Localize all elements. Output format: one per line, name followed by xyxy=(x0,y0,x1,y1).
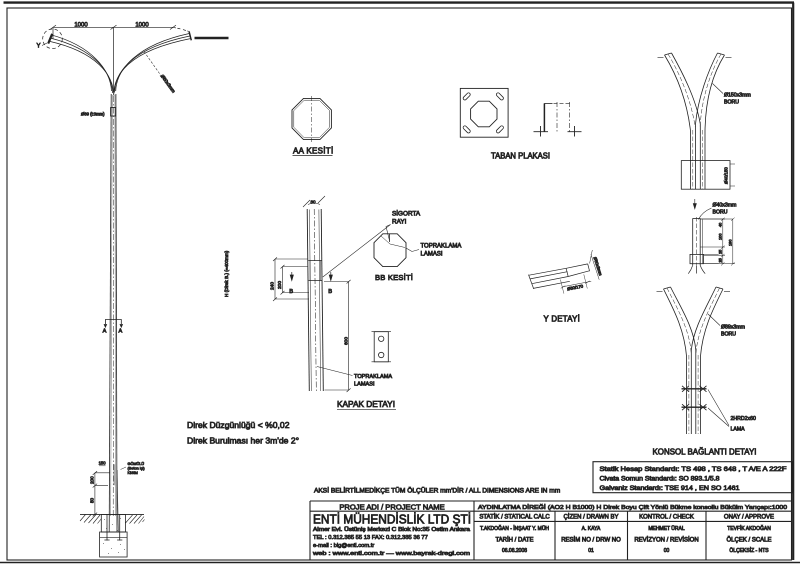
svg-text:06.08.2008: 06.08.2008 xyxy=(502,548,527,554)
svg-text:TARİH / DATE: TARİH / DATE xyxy=(495,537,533,544)
svg-text:RAYI: RAYI xyxy=(392,219,407,226)
svg-text:B: B xyxy=(328,289,332,295)
svg-text:GÖMÜLÜ: GÖMÜLÜ xyxy=(128,462,145,466)
svg-text:TABAN PLAKASI: TABAN PLAKASI xyxy=(491,152,550,161)
svg-text:25: 25 xyxy=(718,250,723,254)
svg-text:TOPRAKLAMA: TOPRAKLAMA xyxy=(354,374,392,380)
svg-text:2HRD2x60: 2HRD2x60 xyxy=(731,416,756,422)
svg-text:H (Direk B.) (=400mm): H (Direk B.) (=400mm) xyxy=(224,250,229,297)
svg-text:80: 80 xyxy=(311,200,317,205)
svg-text:Civata Somun Standardı: SO 89: Civata Somun Standardı: SO 893.1/5.8 xyxy=(600,476,720,483)
svg-text:AA KESİTİ: AA KESİTİ xyxy=(293,147,334,156)
svg-text:Ø40x3mm: Ø40x3mm xyxy=(713,203,737,209)
svg-text:TEL : 0.312.385 55 13 FAX: 0.: TEL : 0.312.385 55 13 FAX: 0.312.385 36 … xyxy=(313,535,428,541)
svg-text:KAPAK DETAYI: KAPAK DETAYI xyxy=(337,399,395,409)
svg-text:LAMA: LAMA xyxy=(731,427,746,433)
svg-text:Y: Y xyxy=(37,44,41,50)
svg-text:240: 240 xyxy=(270,282,276,290)
svg-text:e-mail : blg@enti.com.tr: e-mail : blg@enti.com.tr xyxy=(313,543,374,549)
svg-text:Statik Hesap Standardı: TS 498: Statik Hesap Standardı: TS 498 , TS 648 … xyxy=(600,466,787,473)
svg-text:LAMASI: LAMASI xyxy=(354,381,375,387)
svg-text:BORU: BORU xyxy=(724,100,739,106)
svg-text:Ø40/150: Ø40/150 xyxy=(724,167,729,184)
svg-text:100: 100 xyxy=(718,233,723,240)
svg-text:00: 00 xyxy=(664,548,670,554)
svg-text:50: 50 xyxy=(90,497,95,503)
svg-text:BORU: BORU xyxy=(713,210,728,216)
svg-text:AYDINLATMA DİREĞİ (AO2 H B1000: AYDINLATMA DİREĞİ (AO2 H B1000) H Direk … xyxy=(478,504,788,511)
svg-text:200: 200 xyxy=(90,476,95,484)
svg-text:Ø150x3mm: Ø150x3mm xyxy=(724,93,751,99)
svg-text:RESİM NO / DRW NO: RESİM NO / DRW NO xyxy=(561,537,621,544)
svg-text:KONTROL / CHECK: KONTROL / CHECK xyxy=(639,515,694,521)
svg-text:B: B xyxy=(289,289,293,295)
svg-text:Almer Evl. Üstüniş Merkezi C B: Almer Evl. Üstüniş Merkezi C Blok No:35 … xyxy=(313,526,470,533)
svg-text:1000: 1000 xyxy=(74,22,88,28)
svg-text:190: 190 xyxy=(728,239,733,246)
svg-text:A. KAYA: A. KAYA xyxy=(582,526,601,532)
svg-text:SİGORTA: SİGORTA xyxy=(392,209,421,218)
svg-text:200: 200 xyxy=(277,281,283,289)
svg-text:Direk Düzgünlüğü < %0,02: Direk Düzgünlüğü < %0,02 xyxy=(187,420,290,430)
svg-text:ENTİ MÜHENDİSLİK LTD ŞTİ: ENTİ MÜHENDİSLİK LTD ŞTİ xyxy=(313,513,471,527)
svg-text:25: 25 xyxy=(718,258,723,262)
svg-text:A: A xyxy=(103,329,107,335)
svg-text:Direk Burulması her 3m'de 2°: Direk Burulması her 3m'de 2° xyxy=(187,436,299,446)
svg-text:web : www.enti.com.tr — ww: web : www.enti.com.tr — www.bayrak-dregi… xyxy=(312,551,470,557)
svg-text:KISIM: KISIM xyxy=(128,471,138,475)
svg-text:LAMASI: LAMASI xyxy=(421,252,443,258)
svg-text:BORU: BORU xyxy=(721,332,736,338)
svg-text:KONSOL BAĞLANTI DETAYI: KONSOL BAĞLANTI DETAYI xyxy=(653,446,757,456)
svg-text:01: 01 xyxy=(588,548,594,554)
svg-text:ÇİZEN / DRAWN BY: ÇİZEN / DRAWN BY xyxy=(563,514,618,521)
svg-text:150: 150 xyxy=(99,461,107,466)
svg-text:(Beton içi): (Beton içi) xyxy=(128,466,146,470)
svg-text:Y DETAYİ: Y DETAYİ xyxy=(544,315,581,324)
svg-text:Ø89x3mm: Ø89x3mm xyxy=(721,325,745,331)
svg-text:AKSİ BELİRTİLMEDİKÇE TÜM ÖLÇÜL: AKSİ BELİRTİLMEDİKÇE TÜM ÖLÇÜLER mm'DİR … xyxy=(314,486,561,495)
svg-text:TOPRAKLAMA: TOPRAKLAMA xyxy=(421,244,462,250)
svg-text:Galvaniz Standardı: TSE 914 ,: Galvaniz Standardı: TSE 914 , EN SO 1461 xyxy=(600,485,741,492)
svg-text:600: 600 xyxy=(343,337,349,345)
svg-text:STATİK / STATICAL CALC: STATİK / STATICAL CALC xyxy=(479,514,550,521)
svg-text:ÖLÇEKSİZ - NTS: ÖLÇEKSİZ - NTS xyxy=(729,547,769,554)
svg-text:MEHMET ÜRAL: MEHMET ÜRAL xyxy=(648,525,685,532)
svg-text:ONAY / APPROVE: ONAY / APPROVE xyxy=(724,515,774,521)
svg-text:A: A xyxy=(119,329,123,335)
svg-text:PROJE ADI / PROJECT NAME: PROJE ADI / PROJECT NAME xyxy=(339,502,444,511)
svg-text:1000: 1000 xyxy=(135,22,149,28)
svg-text:ÖLÇEK / SCALE: ÖLÇEK / SCALE xyxy=(726,537,771,544)
svg-text:TEVFİK AKDOĞAN: TEVFİK AKDOĞAN xyxy=(727,525,771,532)
svg-text:Ø89 (t:3mm): Ø89 (t:3mm) xyxy=(81,112,105,117)
svg-text:REVİZYON / REVİSİON: REVİZYON / REVİSİON xyxy=(634,537,698,544)
svg-text:T.AKDOĞAN - İNŞAAT Y. MÜH: T.AKDOĞAN - İNŞAAT Y. MÜH xyxy=(480,525,549,532)
svg-text:BB KESİTİ: BB KESİTİ xyxy=(375,273,413,282)
